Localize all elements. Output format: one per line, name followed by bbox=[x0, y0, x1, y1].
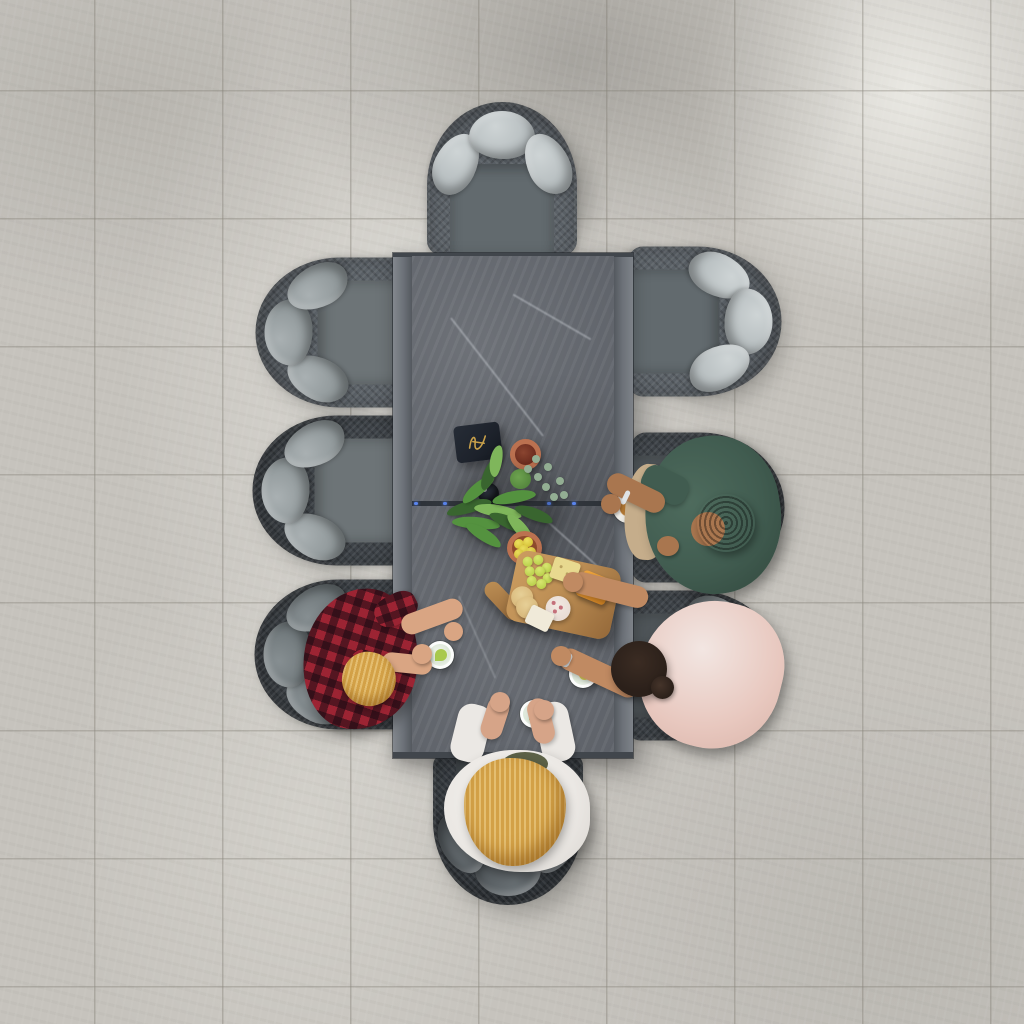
slate-vein bbox=[450, 317, 544, 436]
patio-dining-photo bbox=[0, 0, 1024, 1024]
table-edge-bottom bbox=[393, 752, 633, 758]
table-frame-left bbox=[393, 253, 412, 758]
chair-top bbox=[427, 102, 577, 257]
slate-vein bbox=[458, 595, 496, 678]
seam-glint bbox=[572, 502, 576, 505]
chair-left-1 bbox=[256, 258, 411, 408]
seam-glint bbox=[414, 502, 418, 505]
eucalyptus-leaf bbox=[532, 455, 540, 463]
drink-glass-held bbox=[520, 700, 548, 728]
slate-vein bbox=[513, 294, 592, 341]
eucalyptus-leaf bbox=[550, 493, 558, 501]
lime-wedge bbox=[435, 649, 447, 661]
chair-right-1 bbox=[627, 247, 782, 397]
eucalyptus-leaf bbox=[544, 463, 552, 471]
dining-table bbox=[393, 253, 633, 758]
gold-monogram-icon bbox=[463, 429, 495, 454]
chair-right-3 bbox=[625, 591, 780, 741]
latte-cup bbox=[613, 493, 643, 523]
chair-bottom bbox=[433, 750, 583, 905]
chair-right-2 bbox=[630, 433, 785, 583]
eucalyptus-leaf bbox=[534, 473, 542, 481]
eucalyptus-leaf bbox=[542, 483, 550, 491]
eucalyptus-leaf bbox=[560, 491, 568, 499]
cheese-board bbox=[495, 548, 630, 666]
chair-left-3 bbox=[255, 580, 410, 730]
table-slate-top bbox=[412, 256, 614, 752]
lime-wedge bbox=[529, 708, 541, 720]
drink-glass-lime bbox=[426, 641, 454, 669]
eucalyptus-leaf bbox=[524, 465, 532, 473]
chair-left-2 bbox=[253, 416, 408, 566]
lemon-slice bbox=[579, 669, 590, 680]
eucalyptus-leaf bbox=[556, 477, 564, 485]
drink-glass-lemon bbox=[569, 660, 597, 688]
